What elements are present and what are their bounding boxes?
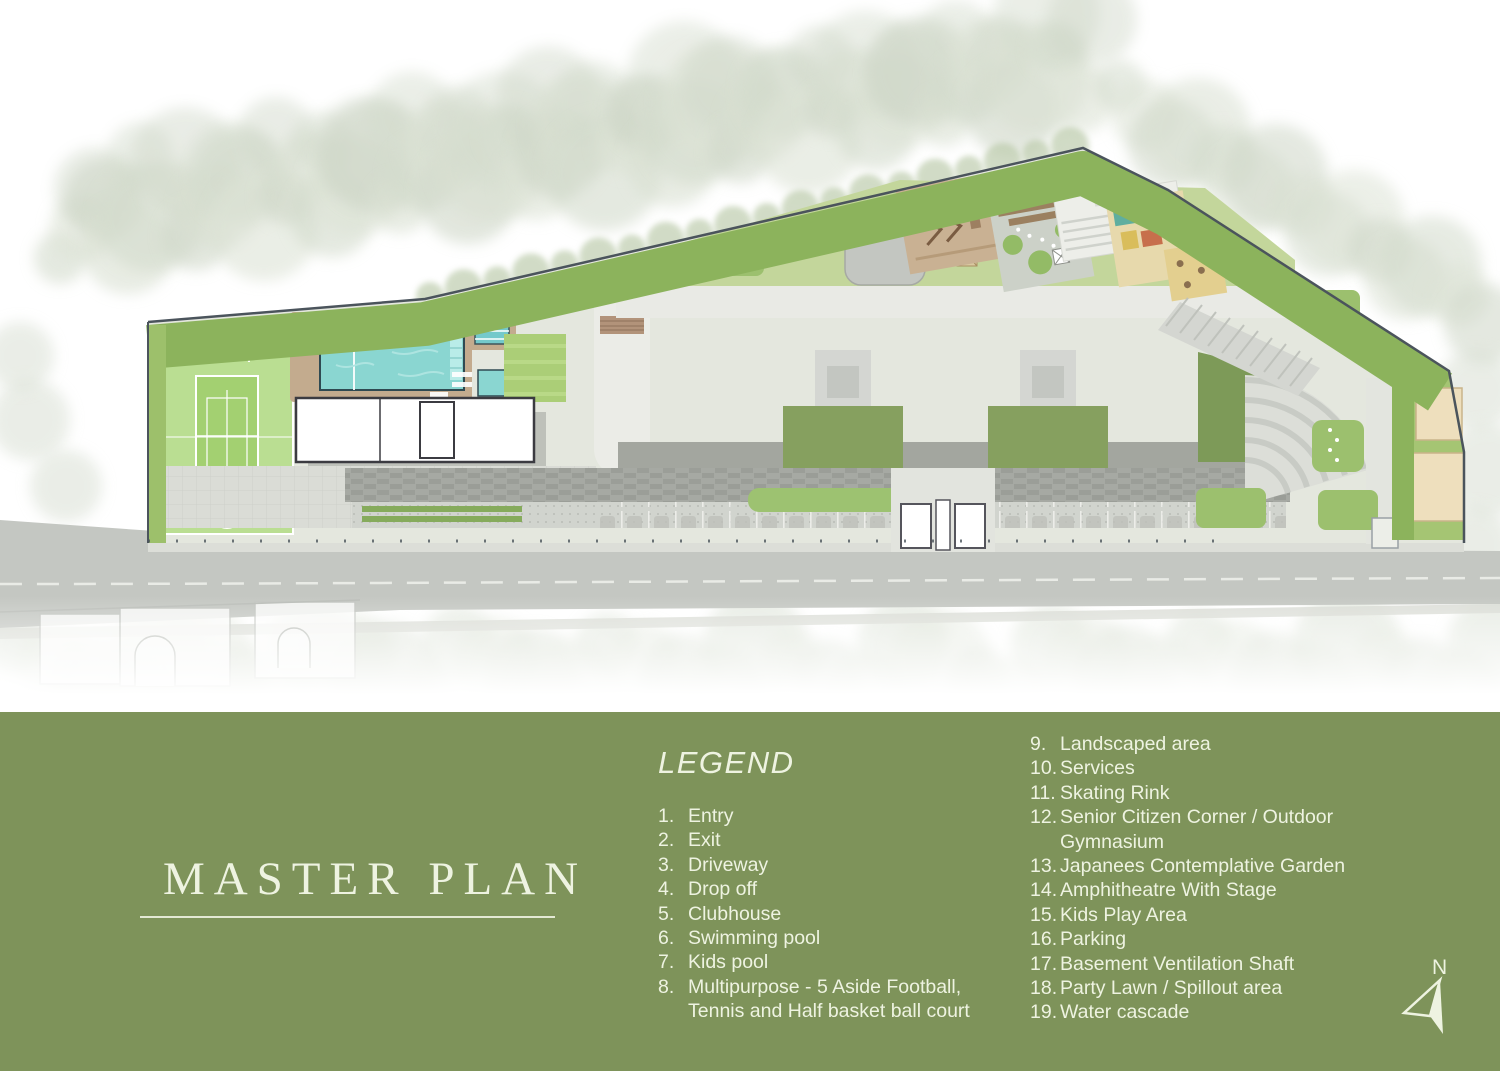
legend-item-label: Kids Play Area bbox=[1060, 903, 1370, 927]
legend-item-label: Services bbox=[1060, 756, 1370, 780]
legend-item-number: 7. bbox=[658, 950, 688, 974]
legend-title: LEGEND bbox=[658, 745, 794, 781]
legend-item: 11.Skating Rink bbox=[1030, 781, 1370, 805]
legend-item-number: 19. bbox=[1030, 1000, 1060, 1024]
title-underline bbox=[140, 916, 555, 918]
legend-item: 14.Amphitheatre With Stage bbox=[1030, 878, 1370, 902]
legend-column-right: 9.Landscaped area10.Services11.Skating R… bbox=[1030, 732, 1370, 1025]
legend-item-label: Landscaped area bbox=[1060, 732, 1370, 756]
legend-item: 17.Basement Ventilation Shaft bbox=[1030, 952, 1370, 976]
master-plan-page: MASTER PLAN LEGEND 1.Entry2.Exit3.Drivew… bbox=[0, 0, 1500, 1071]
legend-item: 6.Swimming pool bbox=[658, 926, 1018, 950]
legend-item: 19.Water cascade bbox=[1030, 1000, 1370, 1024]
legend-item-number: 15. bbox=[1030, 903, 1060, 927]
legend-item-label: Entry bbox=[688, 804, 1018, 828]
legend-item-number: 17. bbox=[1030, 952, 1060, 976]
legend-item-label: Basement Ventilation Shaft bbox=[1060, 952, 1370, 976]
legend-item-label: Driveway bbox=[688, 853, 1018, 877]
info-band: MASTER PLAN LEGEND 1.Entry2.Exit3.Drivew… bbox=[0, 712, 1500, 1071]
legend-item-label: Clubhouse bbox=[688, 902, 1018, 926]
legend-item-label: Water cascade bbox=[1060, 1000, 1370, 1024]
gate-booth bbox=[936, 500, 950, 550]
legend-item-number: 11. bbox=[1030, 781, 1060, 805]
legend-item-label: Japanees Contemplative Garden bbox=[1060, 854, 1370, 878]
legend-item: 3.Driveway bbox=[658, 853, 1018, 877]
legend-item-number: 10. bbox=[1030, 756, 1060, 780]
legend-column-left: 1.Entry2.Exit3.Driveway4.Drop off5.Clubh… bbox=[658, 804, 1018, 1024]
exit-gate-02 bbox=[955, 504, 985, 548]
party-lawn-18 bbox=[504, 334, 566, 402]
legend-item: 13.Japanees Contemplative Garden bbox=[1030, 854, 1370, 878]
legend-item: 7.Kids pool bbox=[658, 950, 1018, 974]
north-arrow: N bbox=[1380, 930, 1500, 1060]
legend-item-number: 9. bbox=[1030, 732, 1060, 756]
legend-item-label: Senior Citizen Corner / OutdoorGymnasium bbox=[1060, 805, 1370, 854]
legend-item-label: Amphitheatre With Stage bbox=[1060, 878, 1370, 902]
site-plan bbox=[0, 0, 1500, 712]
legend-item-label: Swimming pool bbox=[688, 926, 1018, 950]
legend-item-number: 2. bbox=[658, 828, 688, 852]
legend-item: 16.Parking bbox=[1030, 927, 1370, 951]
north-label: N bbox=[1432, 956, 1447, 979]
legend-item: 12.Senior Citizen Corner / OutdoorGymnas… bbox=[1030, 805, 1370, 854]
legend-item-number: 3. bbox=[658, 853, 688, 877]
legend-item-label: Multipurpose - 5 Aside Football,Tennis a… bbox=[688, 975, 1018, 1024]
legend-item: 18.Party Lawn / Spillout area bbox=[1030, 976, 1370, 1000]
legend-item-label: Drop off bbox=[688, 877, 1018, 901]
page-title: MASTER PLAN bbox=[110, 852, 640, 906]
legend-item-label: Party Lawn / Spillout area bbox=[1060, 976, 1370, 1000]
legend-item: 9.Landscaped area bbox=[1030, 732, 1370, 756]
legend-item-number: 6. bbox=[658, 926, 688, 950]
legend-item-number: 8. bbox=[658, 975, 688, 1024]
legend-item-number: 12. bbox=[1030, 805, 1060, 854]
legend-item: 15.Kids Play Area bbox=[1030, 903, 1370, 927]
kids-pool-07 bbox=[478, 370, 508, 396]
legend-item-number: 4. bbox=[658, 877, 688, 901]
legend-item-label: Skating Rink bbox=[1060, 781, 1370, 805]
legend-item-label: Parking bbox=[1060, 927, 1370, 951]
legend-item: 8.Multipurpose - 5 Aside Football,Tennis… bbox=[658, 975, 1018, 1024]
fade-overlay bbox=[0, 596, 1500, 712]
legend-item: 1.Entry bbox=[658, 804, 1018, 828]
legend-item-number: 5. bbox=[658, 902, 688, 926]
legend-item-number: 1. bbox=[658, 804, 688, 828]
legend-item-number: 16. bbox=[1030, 927, 1060, 951]
legend-item-number: 14. bbox=[1030, 878, 1060, 902]
legend-item: 10.Services bbox=[1030, 756, 1370, 780]
clubhouse-05 bbox=[296, 398, 546, 472]
legend-item-number: 18. bbox=[1030, 976, 1060, 1000]
legend-item-label: Exit bbox=[688, 828, 1018, 852]
legend-item: 5.Clubhouse bbox=[658, 902, 1018, 926]
legend-item: 2.Exit bbox=[658, 828, 1018, 852]
legend-item: 4.Drop off bbox=[658, 877, 1018, 901]
legend-item-number: 13. bbox=[1030, 854, 1060, 878]
legend-item-label: Kids pool bbox=[688, 950, 1018, 974]
